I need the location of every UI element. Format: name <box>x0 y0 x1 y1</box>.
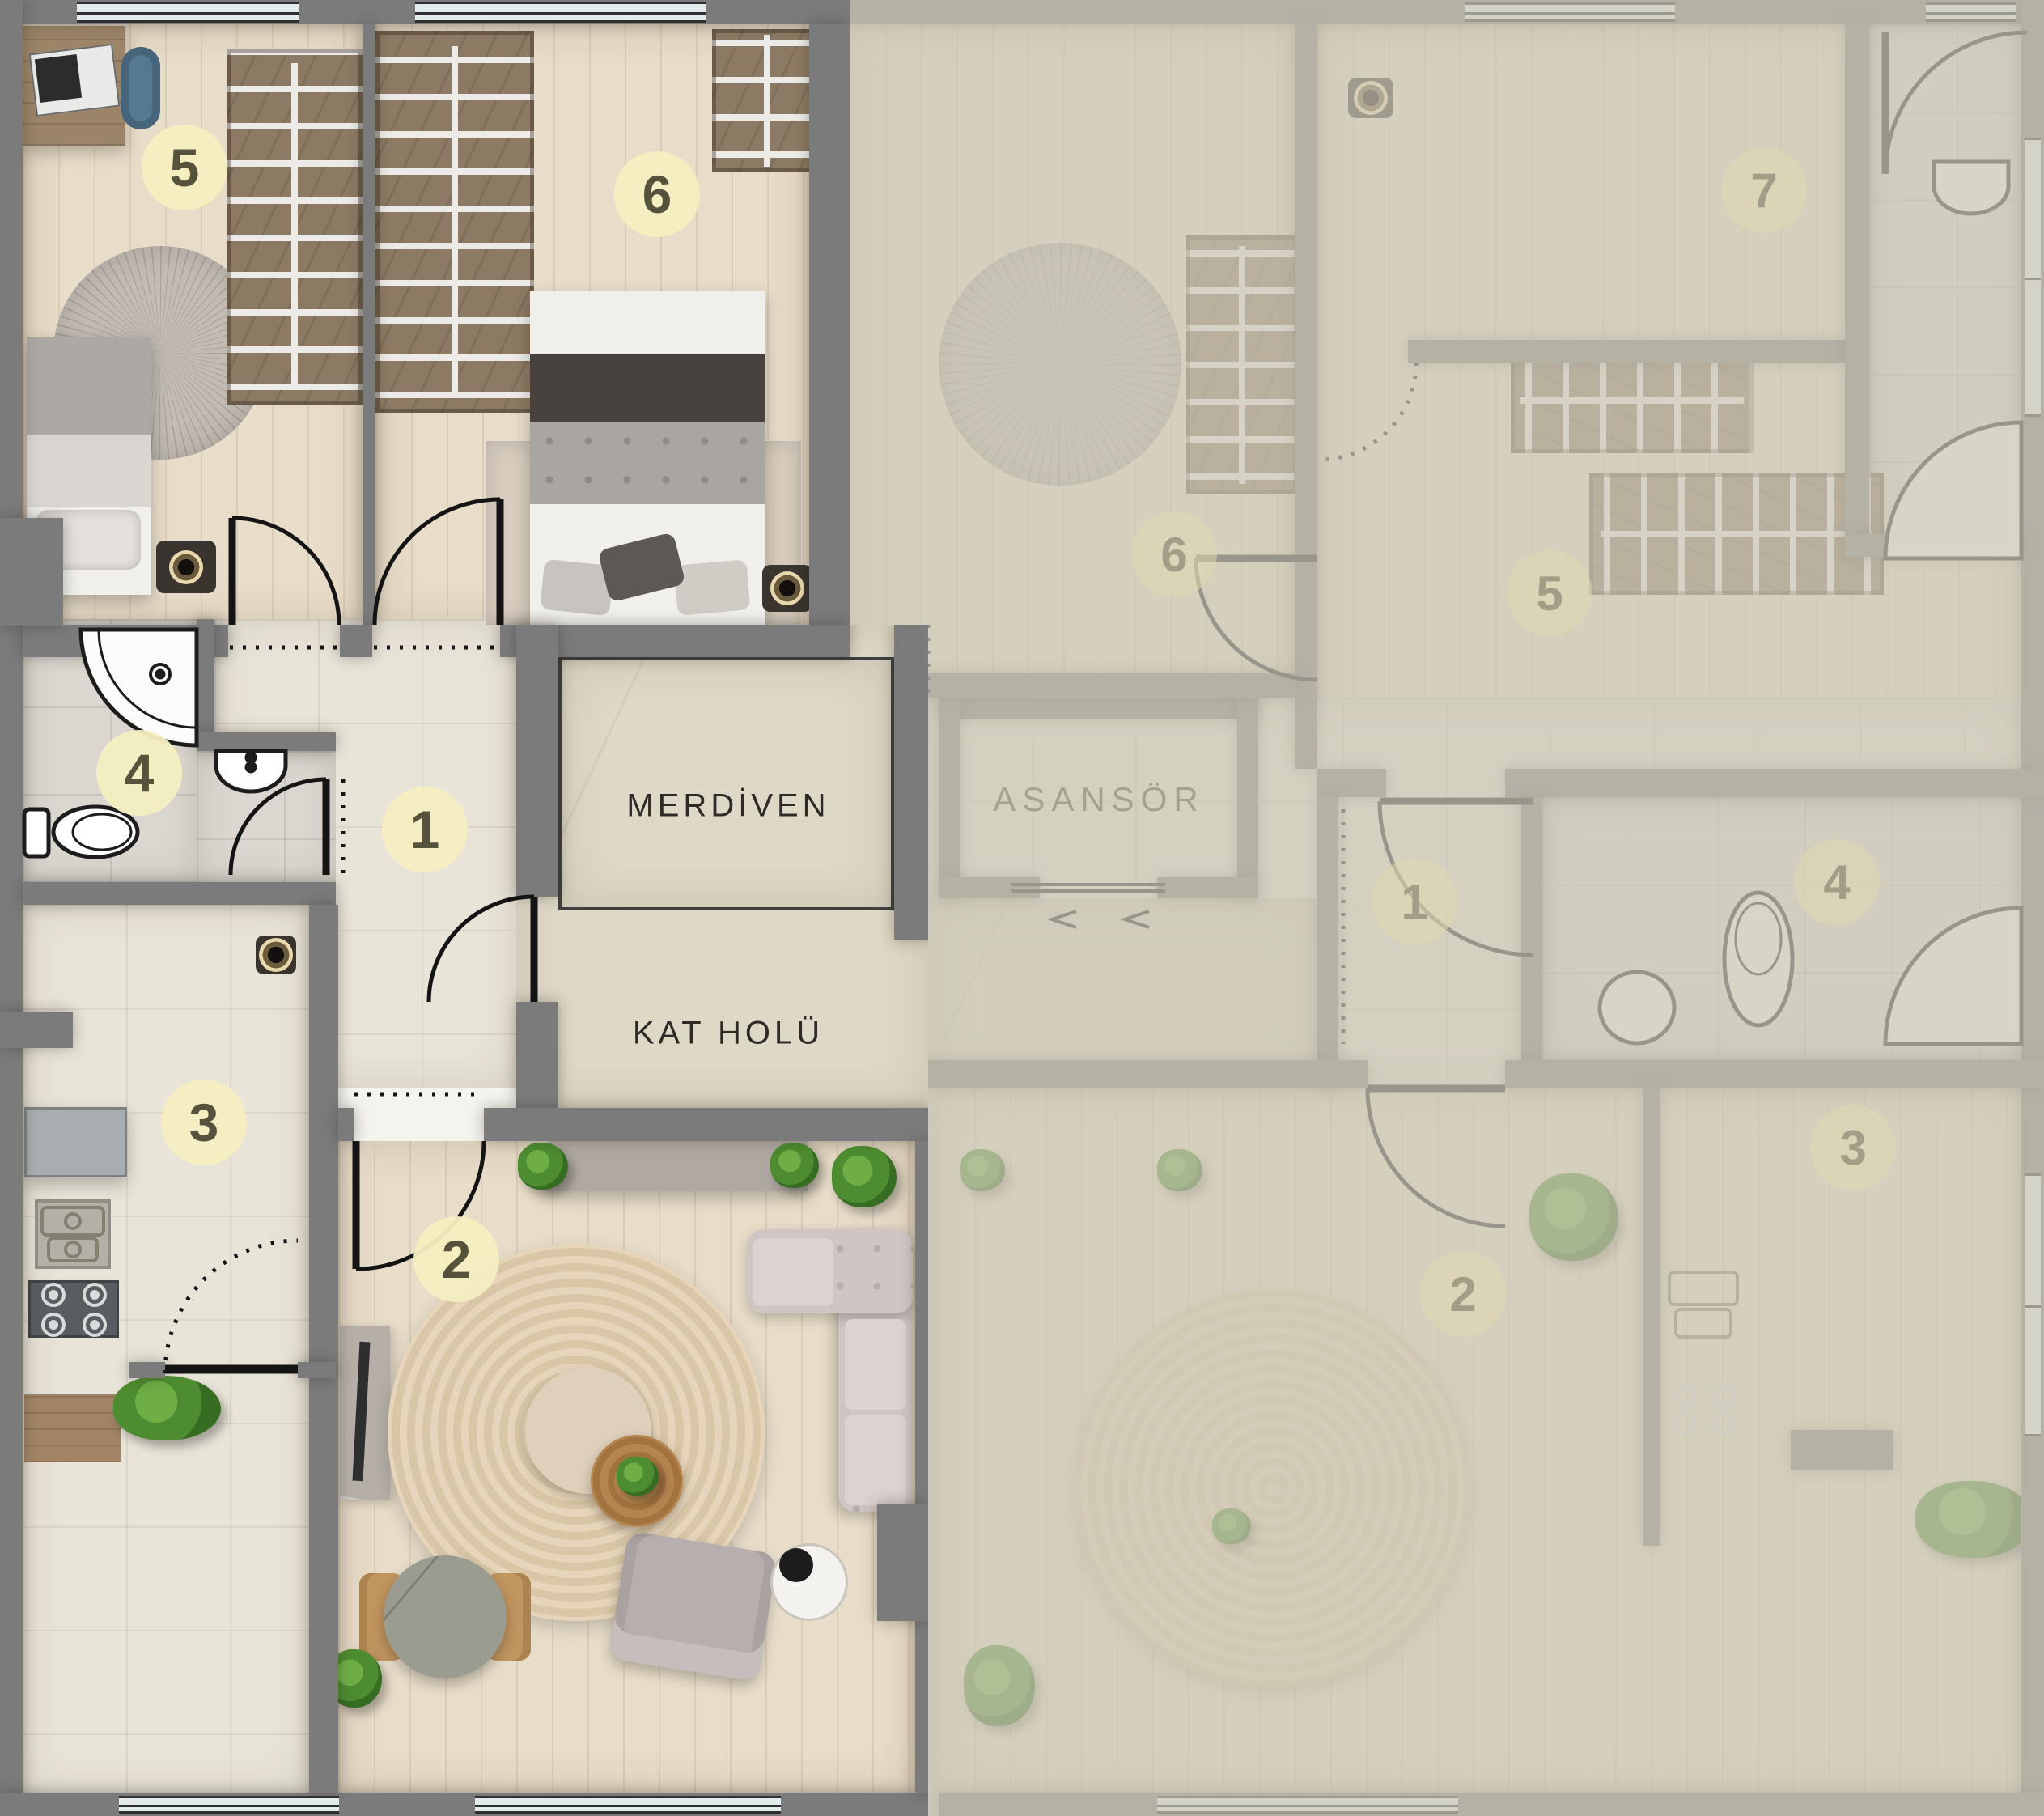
window-kitchen-bottom <box>119 1796 339 1814</box>
f-wall-stub <box>1791 1430 1893 1470</box>
wall-living-right <box>915 1141 928 1793</box>
f-window-top-2 <box>1926 2 2016 22</box>
f-elevator-wall-bottom-l <box>939 877 1040 898</box>
f-elevator-wall-right <box>1237 698 1258 898</box>
f-wall-mid-b <box>1505 769 2044 797</box>
wall-left-pier <box>0 518 63 626</box>
wall-room6-right <box>809 24 850 625</box>
room-badge-5: 5 <box>1507 550 1592 636</box>
wall-stair-left-a <box>516 625 558 897</box>
f-dressing-wardrobe-2 <box>1589 473 1884 595</box>
outer-wall-left <box>0 0 23 1816</box>
f-wall-bathTR-left <box>1845 24 1869 557</box>
wall-kitchen-stub-right <box>298 1362 336 1378</box>
room-badge-4: 4 <box>1794 839 1880 925</box>
wall-kitchen-living <box>309 905 338 1793</box>
f-elevator-wall-left <box>939 698 960 898</box>
room6-wardrobe-left <box>375 31 534 413</box>
f-wall-bathTR-bottom <box>1845 534 2021 557</box>
f-window-right-2 <box>2025 1173 2041 1436</box>
f-room7-lamp <box>1348 78 1393 118</box>
room5-bed-blanket <box>27 435 151 507</box>
stove <box>28 1280 119 1338</box>
stairwell-label: MERDİVEN <box>626 788 829 825</box>
room-badge-3: 3 <box>1810 1105 1896 1190</box>
room5-wardrobe <box>227 49 363 405</box>
room6-bed-throw <box>530 354 765 422</box>
wall-kitchen-pier <box>0 1012 73 1048</box>
hall-wall-lamp <box>256 936 296 974</box>
f-window-bottom <box>1157 1796 1458 1814</box>
stair-shaft <box>558 657 894 910</box>
sofa-cushion-2 <box>845 1319 906 1410</box>
window-living-bottom <box>475 1796 781 1814</box>
f-bathTR-floor <box>1869 24 2021 558</box>
f-elevator-wall-bottom-r <box>1157 877 1258 898</box>
floor-hall-label: KAT HOLÜ <box>633 1016 824 1052</box>
room-badge-7: 7 <box>1721 147 1807 233</box>
wall-kitchen-stub-left <box>129 1362 165 1378</box>
f-console-plant-r <box>1157 1149 1202 1191</box>
wall-living-niche <box>877 1504 928 1621</box>
wall-stair-right <box>894 625 928 940</box>
f-room6-rug <box>939 243 1181 486</box>
bathroom-vestibule-floor <box>197 751 336 882</box>
f-wall-hall-right <box>1521 797 1542 1060</box>
room-badge-1: 1 <box>1372 859 1457 944</box>
wall-living-top-b <box>484 1108 928 1141</box>
console-shelf <box>545 1139 808 1191</box>
f-wall-living-top-a <box>928 1060 1368 1088</box>
f-console-plant-l <box>960 1149 1005 1191</box>
window-room5-top <box>77 2 299 23</box>
f-coffee-table-plant <box>1212 1508 1251 1544</box>
wall-bath-bottom <box>23 882 336 905</box>
f-bath4-floor <box>1542 797 2021 1060</box>
f-window-right-1 <box>2025 138 2041 417</box>
elevator-label: ASANSÖR <box>993 780 1204 819</box>
f-outer-top <box>850 0 2044 24</box>
room-badge-6: 6 <box>614 151 700 237</box>
wall-stair-left-b <box>516 1002 558 1108</box>
room-badge-6: 6 <box>1131 511 1217 597</box>
console-plant-left <box>518 1143 568 1190</box>
room-badge-2: 2 <box>413 1216 499 1302</box>
kitchen-sink-counter <box>35 1199 111 1269</box>
sofa-cushion-1 <box>753 1238 833 1306</box>
sofa-cushion-3 <box>845 1415 906 1505</box>
f-corner-plant <box>1529 1173 1618 1261</box>
room-badge-4: 4 <box>96 730 182 816</box>
desk-chair <box>121 47 160 129</box>
console-plant-mid <box>770 1143 819 1188</box>
f-window-top-1 <box>1465 2 1675 22</box>
f-dressing-wardrobe-1 <box>1511 348 1754 453</box>
fridge <box>24 1107 127 1177</box>
room5-wall-lamp <box>156 541 216 593</box>
dining-table <box>384 1555 507 1678</box>
f-wall-living-top-b <box>1505 1060 2044 1088</box>
room-badge-1: 1 <box>382 787 468 872</box>
f-plant-bottom-right <box>1915 1481 2033 1558</box>
wall-bath-right <box>197 619 214 732</box>
room6-pillow-right <box>673 559 750 616</box>
f-wall-hall-left <box>1317 797 1338 1088</box>
f-outer-bottom <box>939 1793 2044 1816</box>
f-wall-6-7 <box>1295 24 1317 769</box>
f-wall-mid-a <box>1317 769 1386 797</box>
room6-wardrobe-corner <box>712 29 822 172</box>
corner-plant <box>832 1146 897 1207</box>
wall-bath-stub <box>197 732 336 751</box>
room-badge-3: 3 <box>161 1080 247 1165</box>
room-badge-5: 5 <box>142 125 227 210</box>
laptop-keyboard <box>35 54 82 103</box>
wall-living-top-a <box>338 1108 354 1141</box>
f-living-rug <box>1075 1290 1471 1687</box>
room6-bed-headboard <box>530 422 765 504</box>
room6-wall-lamp <box>762 565 812 612</box>
f-room6-wardrobe <box>1186 235 1298 494</box>
f-plant-bottom-left <box>964 1645 1035 1726</box>
kitchen-plant <box>113 1376 221 1440</box>
room5-bed-duvet <box>27 337 151 435</box>
wall-room5-room6 <box>363 24 375 625</box>
wall-bedrooms-bottom-b <box>340 625 372 657</box>
armchair <box>609 1530 778 1682</box>
room-badge-2: 2 <box>1420 1251 1506 1337</box>
f-wall-kitchen <box>1643 1088 1660 1546</box>
f-wall-room7-bottom <box>1408 340 1845 363</box>
coffee-table-plant <box>617 1457 659 1496</box>
window-room6-top <box>415 2 706 23</box>
floor-plan-canvas: MERDİVEN KAT HOLÜ ASANSÖR 564132 7651432 <box>0 0 2044 1816</box>
f-elevator-wall-top <box>939 698 1258 719</box>
floor-lamp <box>779 1548 813 1582</box>
kitchen-wood-counter <box>24 1394 121 1462</box>
